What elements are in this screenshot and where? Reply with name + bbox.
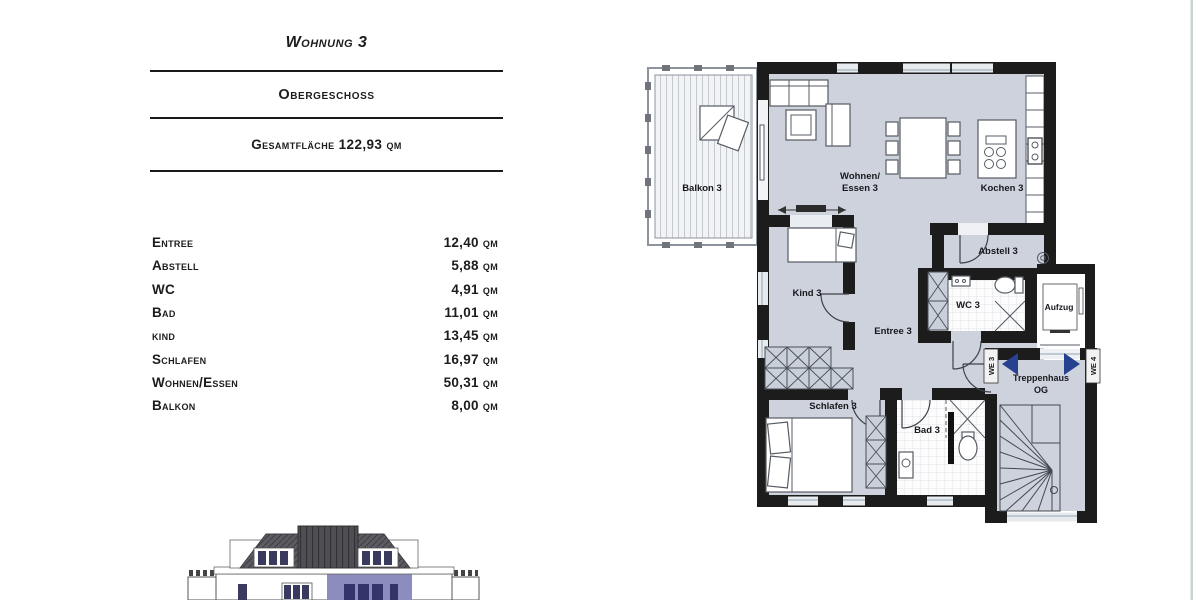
sofa [770,80,828,106]
bath-toilet [959,436,977,460]
bedroom-furniture [766,418,852,492]
stairwell-label-2: OG [1034,385,1048,395]
we4-label: WE 4 [1089,356,1098,375]
bedroom-label: Schlafen 3 [809,401,857,412]
child-room-furniture [788,228,856,262]
right-dormer [358,548,398,567]
bath-partition [948,412,954,464]
shaft [928,272,948,330]
wc-washbasin [952,276,970,286]
storage-label: Abstell 3 [978,246,1018,257]
stairwell-label-1: Treppenhaus [1013,373,1069,383]
kitchen-island [978,120,1016,178]
living-room-label-1: Wohnen/ [840,171,880,182]
armchair [826,104,850,146]
hall-label: Entree 3 [874,326,912,337]
dining-set [886,118,960,178]
child-room-label: Kind 3 [792,288,821,299]
roof-center-section [298,526,358,568]
balcony-door [760,125,764,180]
elevator-label: Aufzug [1045,302,1074,312]
elevator: Aufzug [1037,274,1085,348]
highlighted-apartment-facade [327,574,412,600]
we3-label: WE 3 [987,357,996,375]
building-elevation [188,526,479,600]
balcony: Balkon 3 [645,65,757,248]
left-dormer [254,548,294,567]
sliding-door-opening [790,215,832,227]
storage-door-opening [958,223,988,235]
balcony-label: Balkon 3 [682,183,722,194]
living-room-label-2: Essen 3 [842,183,878,194]
bath-washbasin [899,452,913,478]
floorplan-document-page: Wohnung 3 Obergeschoss Gesamtfläche 122,… [0,0,1200,600]
wc-toilet [995,277,1015,293]
kitchen-counter [1026,76,1044,230]
bedroom-wardrobe [866,416,886,488]
wc-label: WC 3 [956,300,980,311]
sink-module [1028,138,1042,164]
bath-label: Bad 3 [914,425,940,436]
kitchen-label: Kochen 3 [981,183,1024,194]
floor-plan-drawing: Balkon 3 [0,0,1200,600]
scan-edge-line [1191,0,1194,600]
